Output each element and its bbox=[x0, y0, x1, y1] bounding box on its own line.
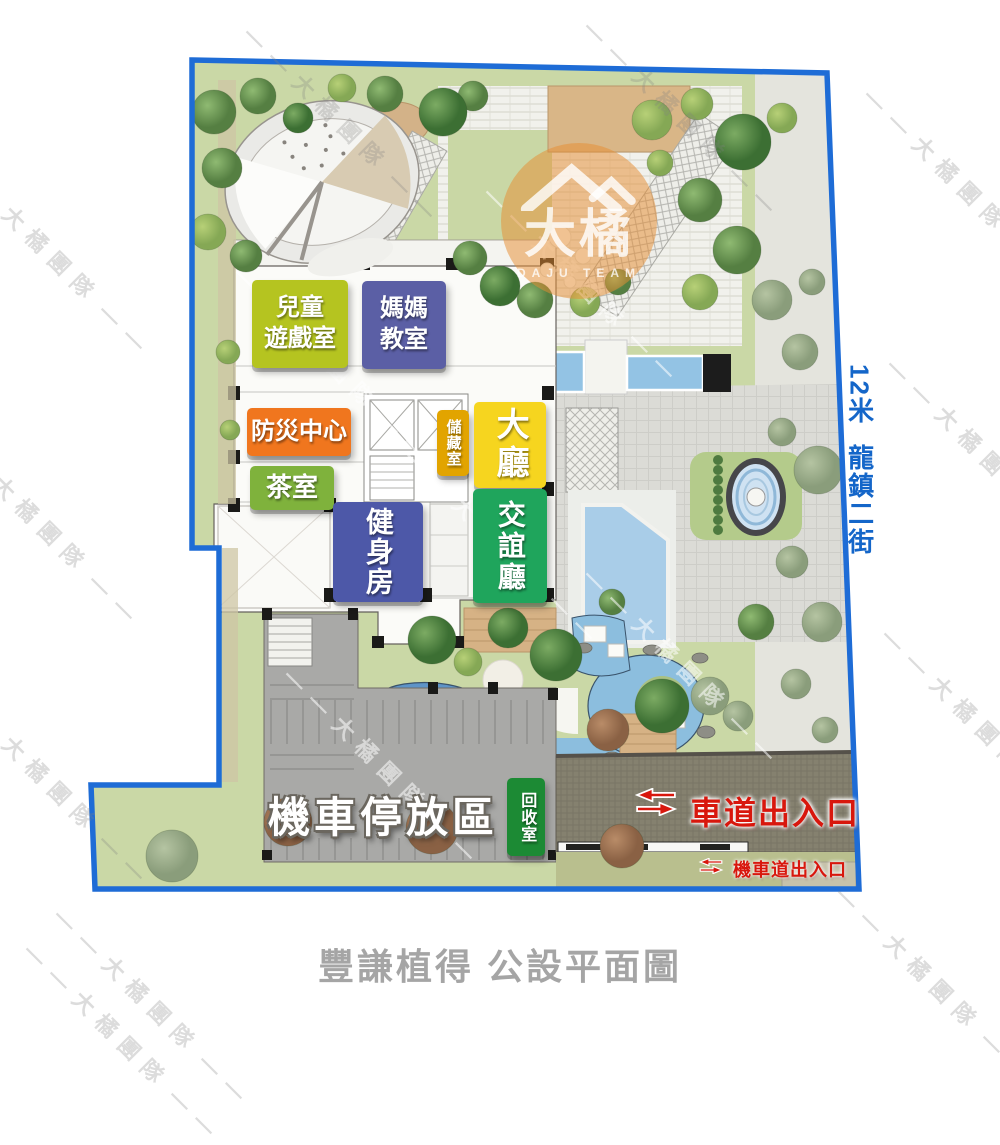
page-title: 豐謙植得 公設平面圖 bbox=[0, 938, 1000, 990]
trellis-square bbox=[566, 408, 618, 492]
room-label-disaster-center: 防災中心 bbox=[247, 408, 351, 456]
page: { "page": { "title": "豐謙植得 公設平面圖" }, "wa… bbox=[0, 0, 1000, 1000]
room-label-social-hall: 交誼廳 bbox=[473, 489, 547, 603]
car-entrance-arrows-icon bbox=[630, 788, 682, 821]
motorcycle-entrance-caption: 機車道出入口 bbox=[733, 856, 847, 882]
room-label-recycle-room: 回收室 bbox=[507, 778, 545, 856]
street-width: 12米 bbox=[845, 364, 875, 425]
fountain bbox=[690, 452, 802, 540]
room-label-tea-room: 茶室 bbox=[250, 466, 334, 510]
room-label-storage-room: 儲藏室 bbox=[437, 410, 469, 476]
room-label-gym: 健身房 bbox=[333, 502, 423, 602]
motorcycle-parking-caption: 機車停放區 bbox=[268, 784, 498, 845]
room-label-mothers-classroom: 媽媽 教室 bbox=[362, 281, 446, 369]
motorcycle-entrance-arrows-icon bbox=[696, 858, 726, 879]
room-label-kids-playroom: 兒童 遊戲室 bbox=[252, 280, 348, 368]
car-entrance-caption: 車道出入口 bbox=[690, 788, 860, 834]
street-label: 12米 龍鎮二街 bbox=[845, 364, 874, 556]
street-name: 龍鎮二街 bbox=[845, 444, 875, 556]
room-label-lobby: 大廳 bbox=[474, 402, 546, 488]
